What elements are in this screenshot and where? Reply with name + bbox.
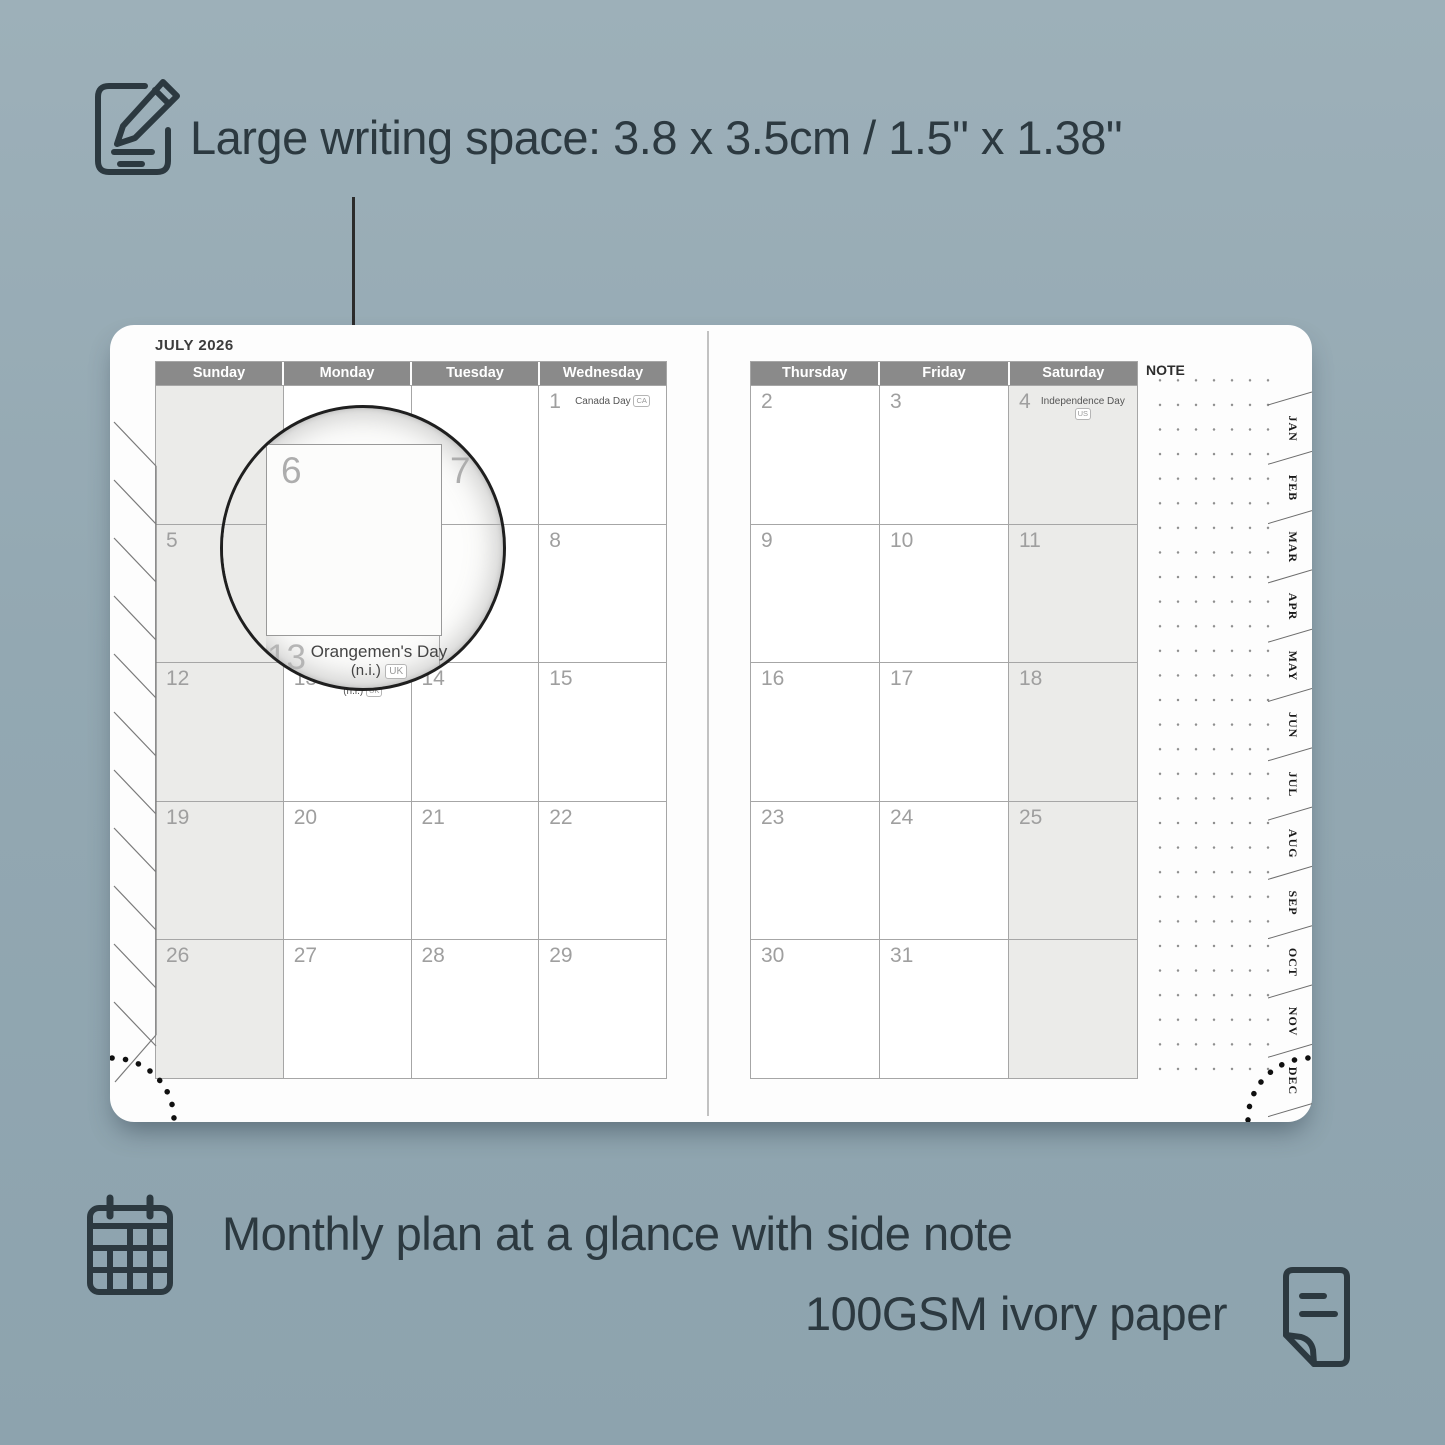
paper-icon <box>1268 1262 1356 1379</box>
note-label: NOTE <box>1146 362 1190 378</box>
calendar-icon <box>82 1190 176 1303</box>
country-badge: UK <box>385 664 407 679</box>
magnified-day-number: 7 <box>450 450 471 492</box>
magnified-holiday-label: Orangemen's Day (n.i.) UK <box>295 642 463 680</box>
magnified-weekend-shade <box>223 408 266 688</box>
magnifier-lens: 6 7 13 Orangemen's Day (n.i.) UK <box>220 405 506 691</box>
grid-line <box>440 524 503 525</box>
magnified-day-number: 6 <box>281 450 302 492</box>
product-image: Large writing space: 3.8 x 3.5cm / 1.5" … <box>0 0 1445 1445</box>
paper-annotation: 100GSM ivory paper <box>805 1286 1227 1341</box>
pencil-notepad-icon <box>85 76 181 181</box>
grid-line <box>223 524 266 525</box>
writing-space-annotation: Large writing space: 3.8 x 3.5cm / 1.5" … <box>190 110 1122 165</box>
monthly-plan-annotation: Monthly plan at a glance with side note <box>222 1206 1012 1261</box>
